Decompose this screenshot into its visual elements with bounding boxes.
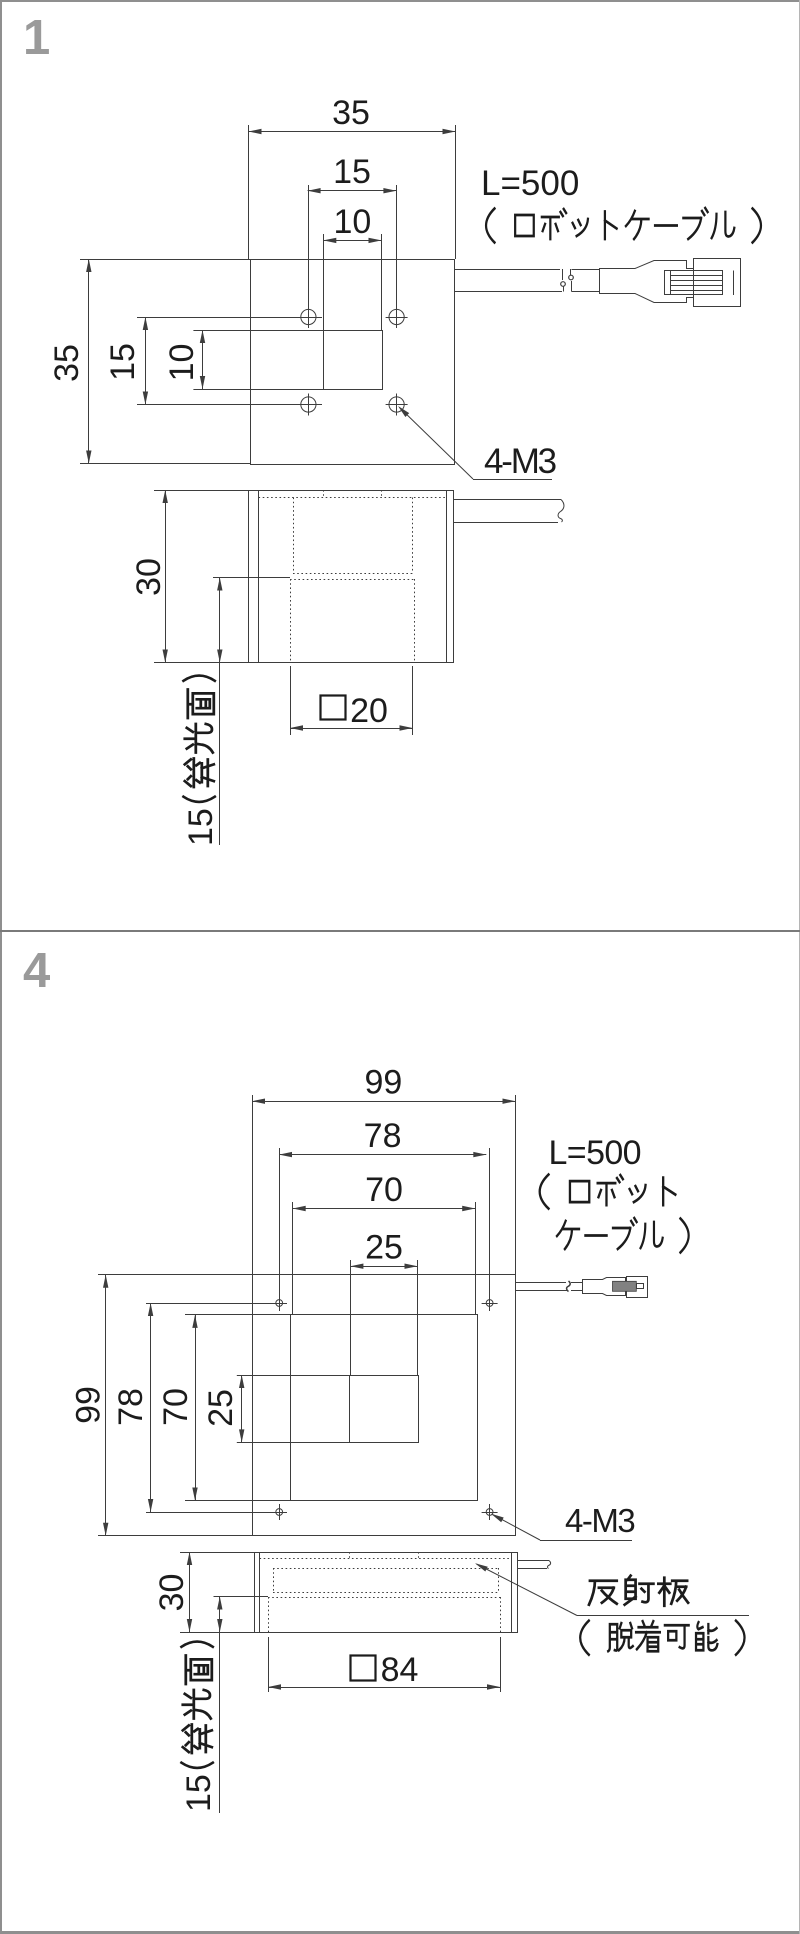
svg-text:4-M3: 4-M3: [565, 1502, 634, 1539]
svg-text:99: 99: [364, 1064, 402, 1102]
svg-text:15: 15: [182, 808, 220, 846]
svg-text:L=500: L=500: [481, 164, 579, 203]
svg-text:70: 70: [365, 1171, 403, 1209]
svg-text:25: 25: [365, 1229, 403, 1267]
svg-text:78: 78: [364, 1117, 402, 1155]
svg-text:99: 99: [70, 1386, 108, 1424]
svg-text:35: 35: [332, 94, 370, 132]
svg-text:25: 25: [202, 1389, 240, 1427]
svg-text:10: 10: [163, 344, 201, 382]
svg-text:10: 10: [333, 203, 371, 241]
svg-text:70: 70: [157, 1388, 195, 1426]
svg-text:20: 20: [350, 692, 388, 730]
svg-text:30: 30: [153, 1574, 191, 1612]
svg-text:15: 15: [180, 1774, 218, 1812]
svg-text:84: 84: [381, 1651, 419, 1689]
svg-text:15: 15: [333, 153, 371, 191]
svg-text:78: 78: [112, 1388, 150, 1426]
svg-text:35: 35: [48, 344, 86, 382]
svg-text:L=500: L=500: [549, 1134, 642, 1172]
svg-text:30: 30: [130, 558, 168, 596]
svg-text:4-M3: 4-M3: [484, 442, 556, 481]
svg-text:15: 15: [104, 343, 142, 381]
